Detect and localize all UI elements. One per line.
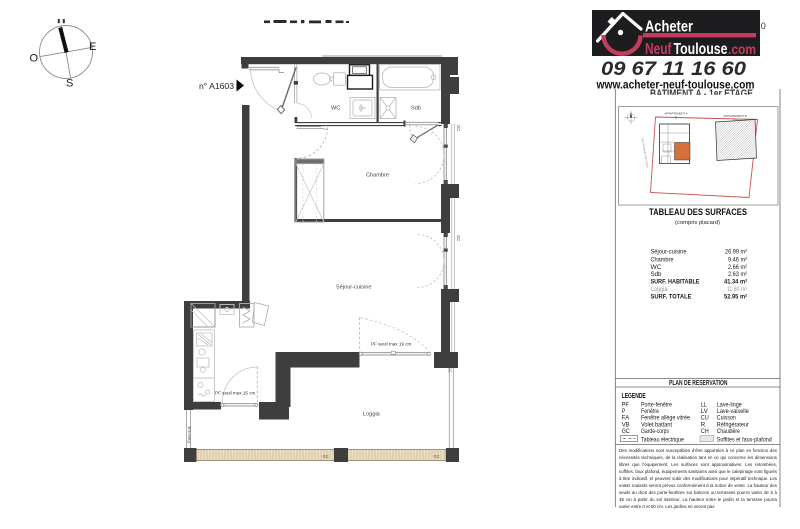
svg-text:O: O [30, 53, 39, 65]
svg-text:GC: GC [434, 454, 440, 459]
svg-text:GC: GC [323, 454, 329, 459]
svg-text:Chambre: Chambre [366, 173, 389, 179]
svg-text:Garde-corps: Garde-corps [641, 429, 669, 435]
svg-text:Pare-vue: Pare-vue [187, 425, 192, 443]
svg-text:Loggia: Loggia [363, 412, 381, 418]
svg-text:Séjour-cuisine: Séjour-cuisine [651, 249, 687, 256]
svg-text:LEGENDE: LEGENDE [622, 393, 646, 400]
svg-text:11.60 m²: 11.60 m² [727, 286, 747, 293]
svg-text:Volet battant: Volet battant [641, 422, 672, 428]
svg-text:26.99 m²: 26.99 m² [725, 249, 747, 256]
svg-text:(compris placard): (compris placard) [675, 220, 720, 226]
svg-text:Porte-fenêtre: Porte-fenêtre [641, 402, 673, 408]
svg-text:Réfrigérateur: Réfrigérateur [717, 422, 749, 428]
svg-text:APPARTEMENT A: APPARTEMENT A [664, 112, 687, 116]
svg-text:GC: GC [456, 235, 461, 241]
svg-text:TABLEAU DES SURFACES: TABLEAU DES SURFACES [649, 206, 747, 217]
svg-text:Chaudière: Chaudière [717, 429, 741, 435]
svg-text:Tableau électrique: Tableau électrique [641, 437, 685, 443]
svg-text:S: S [66, 78, 73, 90]
svg-text:Sdb: Sdb [651, 271, 662, 278]
svg-text:LV: LV [701, 409, 708, 415]
svg-text:VB: VB [622, 422, 630, 428]
svg-text:FA: FA [622, 416, 630, 422]
svg-text:PF seuil max 15 cm: PF seuil max 15 cm [215, 391, 256, 396]
svg-text:Soffites et faux-plafond: Soffites et faux-plafond [717, 437, 772, 443]
svg-text:PF: PF [622, 402, 629, 408]
svg-text:.com: .com [728, 41, 756, 57]
svg-text:n° A1603: n° A1603 [199, 81, 234, 91]
svg-text:Toulouse: Toulouse [674, 41, 728, 58]
svg-text:Lave-linge: Lave-linge [717, 402, 743, 408]
svg-text:52.95 m²: 52.95 m² [724, 293, 747, 300]
svg-text:PF seuil max 19 cm: PF seuil max 19 cm [371, 342, 412, 347]
svg-text:GC: GC [622, 429, 631, 435]
svg-text:WC: WC [651, 264, 662, 271]
svg-text:Cuisson: Cuisson [717, 416, 736, 422]
svg-text:2.63 m²: 2.63 m² [728, 271, 747, 278]
svg-text:9.46 m²: 9.46 m² [728, 256, 747, 263]
svg-text:WC: WC [331, 106, 340, 112]
svg-text:Loggia: Loggia [651, 286, 668, 293]
svg-text:E: E [89, 41, 96, 53]
svg-text:41.34 m²: 41.34 m² [724, 278, 747, 285]
svg-text:2.66 m²: 2.66 m² [728, 264, 747, 271]
svg-text:Neuf: Neuf [645, 41, 672, 58]
svg-text:Sdb: Sdb [411, 106, 421, 112]
svg-text:09 67 11 16 60: 09 67 11 16 60 [601, 58, 746, 80]
svg-text:Chambre: Chambre [651, 256, 674, 263]
svg-text:CH: CH [701, 429, 709, 435]
svg-text:GC: GC [448, 367, 453, 373]
svg-text:P: P [622, 409, 626, 415]
svg-text:GC: GC [456, 125, 461, 131]
svg-text:R: R [701, 422, 706, 428]
svg-text:SURF. HABITABLE: SURF. HABITABLE [651, 278, 701, 285]
svg-text:BATIMENT A - 1er ETAGE: BATIMENT A - 1er ETAGE [650, 88, 753, 100]
svg-text:Fenêtre allège vitrée: Fenêtre allège vitrée [641, 416, 691, 422]
svg-text:LL: LL [701, 402, 708, 408]
svg-text:CU: CU [701, 416, 709, 422]
svg-text:Fenêtre: Fenêtre [641, 409, 660, 415]
svg-text:SURF. TOTALE: SURF. TOTALE [651, 293, 693, 300]
svg-text:Acheter: Acheter [645, 19, 693, 36]
svg-text:Lave-vaiselle: Lave-vaiselle [717, 409, 750, 415]
svg-text:0: 0 [761, 21, 766, 31]
svg-text:PLAN DE RESERVATION: PLAN DE RESERVATION [669, 380, 728, 387]
svg-text:Séjour-cuisine: Séjour-cuisine [336, 285, 371, 291]
svg-text:APPARTEMENT B: APPARTEMENT B [723, 114, 746, 118]
